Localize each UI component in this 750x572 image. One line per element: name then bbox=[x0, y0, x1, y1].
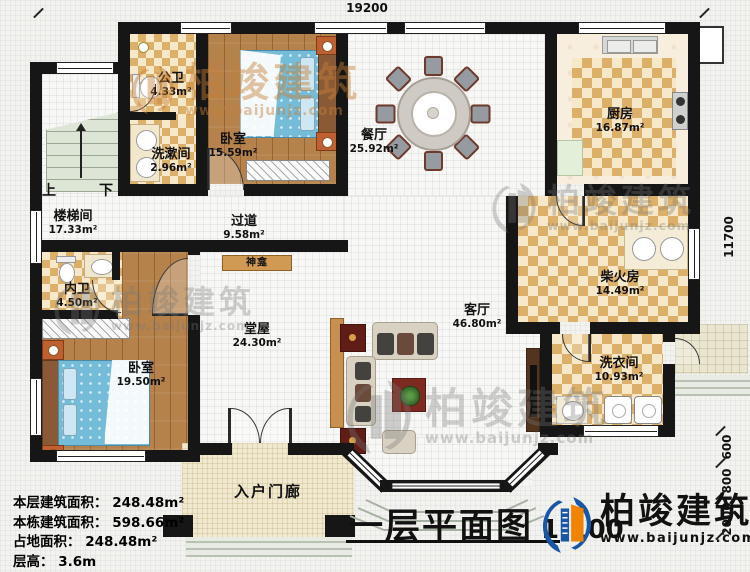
laundry-sink bbox=[556, 396, 588, 424]
wall bbox=[244, 184, 348, 196]
toilet bbox=[56, 256, 76, 263]
info-block: 本层建筑面积： 248.48m² 本栋建筑面积： 598.66m² 占地面积： … bbox=[13, 494, 184, 572]
wall bbox=[545, 184, 557, 196]
room-area: 14.49m² bbox=[596, 285, 645, 297]
window bbox=[56, 450, 146, 462]
room-name: 楼梯间 bbox=[53, 209, 92, 224]
room-area: 46.80m² bbox=[453, 318, 502, 330]
brand-url: www.baijunjz.com bbox=[600, 531, 750, 546]
wardrobe-bedroom2 bbox=[42, 318, 130, 339]
info-line: 占地面积： 248.48m² bbox=[13, 533, 184, 553]
floor-plan: 楼梯间17.33m² 公卫4.33m² 洗漱间2.96m² 卧室15.59m² … bbox=[0, 0, 750, 572]
room-area: 10.93m² bbox=[595, 371, 644, 383]
room-name: 内卫 bbox=[64, 282, 90, 297]
window bbox=[30, 378, 42, 436]
room-area: 25.92m² bbox=[350, 143, 399, 155]
room-name: 柴火房 bbox=[600, 270, 639, 285]
room-label-gongwei: 公卫4.33m² bbox=[150, 72, 191, 98]
brand-name: 柏竣建筑 bbox=[600, 494, 750, 531]
sofa-three-seat bbox=[372, 322, 438, 360]
window bbox=[314, 22, 388, 34]
room-name: 客厅 bbox=[464, 303, 490, 318]
stair-direction-arrow bbox=[80, 126, 82, 178]
window bbox=[30, 210, 42, 264]
room-label-canting: 餐厅25.92m² bbox=[350, 129, 399, 155]
wall bbox=[196, 240, 348, 252]
wall bbox=[42, 310, 118, 319]
stair-down-label: 下 bbox=[99, 180, 113, 200]
tv-cabinet bbox=[526, 348, 540, 432]
room-area: 9.58m² bbox=[223, 229, 264, 241]
room-area: 19.50m² bbox=[117, 376, 166, 388]
stair-up-label: 上 bbox=[42, 180, 56, 200]
wall bbox=[545, 34, 557, 196]
dimension-tick bbox=[699, 8, 710, 19]
room-name: 餐厅 bbox=[361, 128, 387, 143]
room-area: 4.50m² bbox=[56, 297, 97, 309]
wall bbox=[584, 184, 700, 196]
firewood-stove-counter bbox=[624, 226, 688, 270]
room-name: 厨房 bbox=[607, 107, 633, 122]
title-underline bbox=[346, 540, 560, 543]
stove bbox=[672, 92, 688, 130]
room-area: 16.87m² bbox=[596, 122, 645, 134]
brand-block: 柏竣建筑 www.baijunjz.com bbox=[538, 494, 750, 556]
wall bbox=[336, 34, 348, 196]
room-name: 入户门廊 bbox=[234, 483, 302, 501]
dimension-tick bbox=[33, 8, 44, 19]
wall bbox=[112, 252, 120, 280]
wall bbox=[540, 334, 552, 437]
ceiling-lamp bbox=[138, 42, 149, 53]
side-porch-steps bbox=[675, 376, 750, 396]
dimension-right-main: 11700 bbox=[722, 209, 736, 265]
window bbox=[180, 22, 232, 34]
brand-logo-icon bbox=[538, 494, 596, 556]
wall bbox=[590, 322, 700, 334]
wall bbox=[663, 334, 675, 342]
window bbox=[578, 22, 666, 34]
shrine-label: 神龛 bbox=[246, 257, 268, 268]
room-label-chaihuofang: 柴火房14.49m² bbox=[596, 271, 645, 297]
nightstand bbox=[316, 36, 338, 55]
wall bbox=[118, 184, 208, 196]
room-area: 2.96m² bbox=[150, 162, 191, 174]
wall bbox=[506, 196, 518, 322]
dimension-top: 19200 bbox=[322, 1, 412, 15]
info-line: 本层建筑面积： 248.48m² bbox=[13, 494, 184, 514]
wall bbox=[200, 443, 232, 455]
room-label-xiyijian: 洗衣间10.93m² bbox=[595, 357, 644, 383]
toilet-bowl bbox=[59, 263, 75, 283]
wall bbox=[506, 322, 560, 334]
room-label-xishujian: 洗漱间2.96m² bbox=[150, 148, 191, 174]
window bbox=[583, 425, 659, 437]
wall bbox=[188, 315, 200, 462]
wall bbox=[118, 22, 130, 196]
room-name: 卧室 bbox=[220, 132, 246, 147]
kitchen-counter bbox=[557, 140, 583, 176]
window bbox=[688, 228, 700, 280]
window bbox=[56, 62, 114, 74]
room-name: 过道 bbox=[231, 214, 257, 229]
wall bbox=[130, 112, 176, 120]
info-line: 本栋建筑面积： 598.66m² bbox=[13, 514, 184, 534]
sofa-chaise bbox=[346, 356, 376, 426]
room-area: 24.30m² bbox=[233, 337, 282, 349]
room-label-keting: 客厅46.80m² bbox=[453, 304, 502, 330]
wall bbox=[663, 364, 675, 437]
info-line: 层高： 3.6m bbox=[13, 553, 184, 572]
room-area: 4.33m² bbox=[150, 86, 191, 98]
coffee-table bbox=[392, 378, 426, 412]
room-name: 公卫 bbox=[158, 71, 184, 86]
nightstand bbox=[42, 340, 64, 360]
kitchen-sink bbox=[602, 36, 658, 54]
room-label-neiwei: 内卫4.50m² bbox=[56, 283, 97, 309]
room-label-woshi1: 卧室15.59m² bbox=[209, 133, 258, 159]
washing-machine bbox=[634, 396, 662, 424]
bed-bedroom1 bbox=[240, 50, 336, 136]
room-label-guodao: 过道9.58m² bbox=[223, 215, 264, 241]
room-area: 15.59m² bbox=[209, 147, 258, 159]
nightstand bbox=[316, 132, 338, 151]
wall bbox=[30, 240, 200, 252]
room-name: 洗衣间 bbox=[599, 356, 638, 371]
room-area: 17.33m² bbox=[49, 224, 98, 236]
room-label-woshi2: 卧室19.50m² bbox=[117, 362, 166, 388]
room-label-rumenlang: 入户门廊 bbox=[234, 484, 302, 501]
washing-machine bbox=[604, 396, 632, 424]
room-name: 神龛 bbox=[246, 257, 268, 268]
window bbox=[404, 22, 486, 34]
accent-cabinet bbox=[340, 324, 366, 352]
room-name: 洗漱间 bbox=[151, 147, 190, 162]
entry-porch-steps bbox=[186, 537, 352, 557]
room-name: 卧室 bbox=[128, 361, 154, 376]
door-leaf bbox=[289, 408, 292, 443]
wardrobe-bedroom1 bbox=[246, 160, 330, 181]
room-label-loutijian: 楼梯间17.33m² bbox=[49, 210, 98, 236]
room-label-tangwu: 堂屋24.30m² bbox=[233, 323, 282, 349]
room-name: 堂屋 bbox=[244, 322, 270, 337]
room-label-chufang: 厨房16.87m² bbox=[596, 108, 645, 134]
